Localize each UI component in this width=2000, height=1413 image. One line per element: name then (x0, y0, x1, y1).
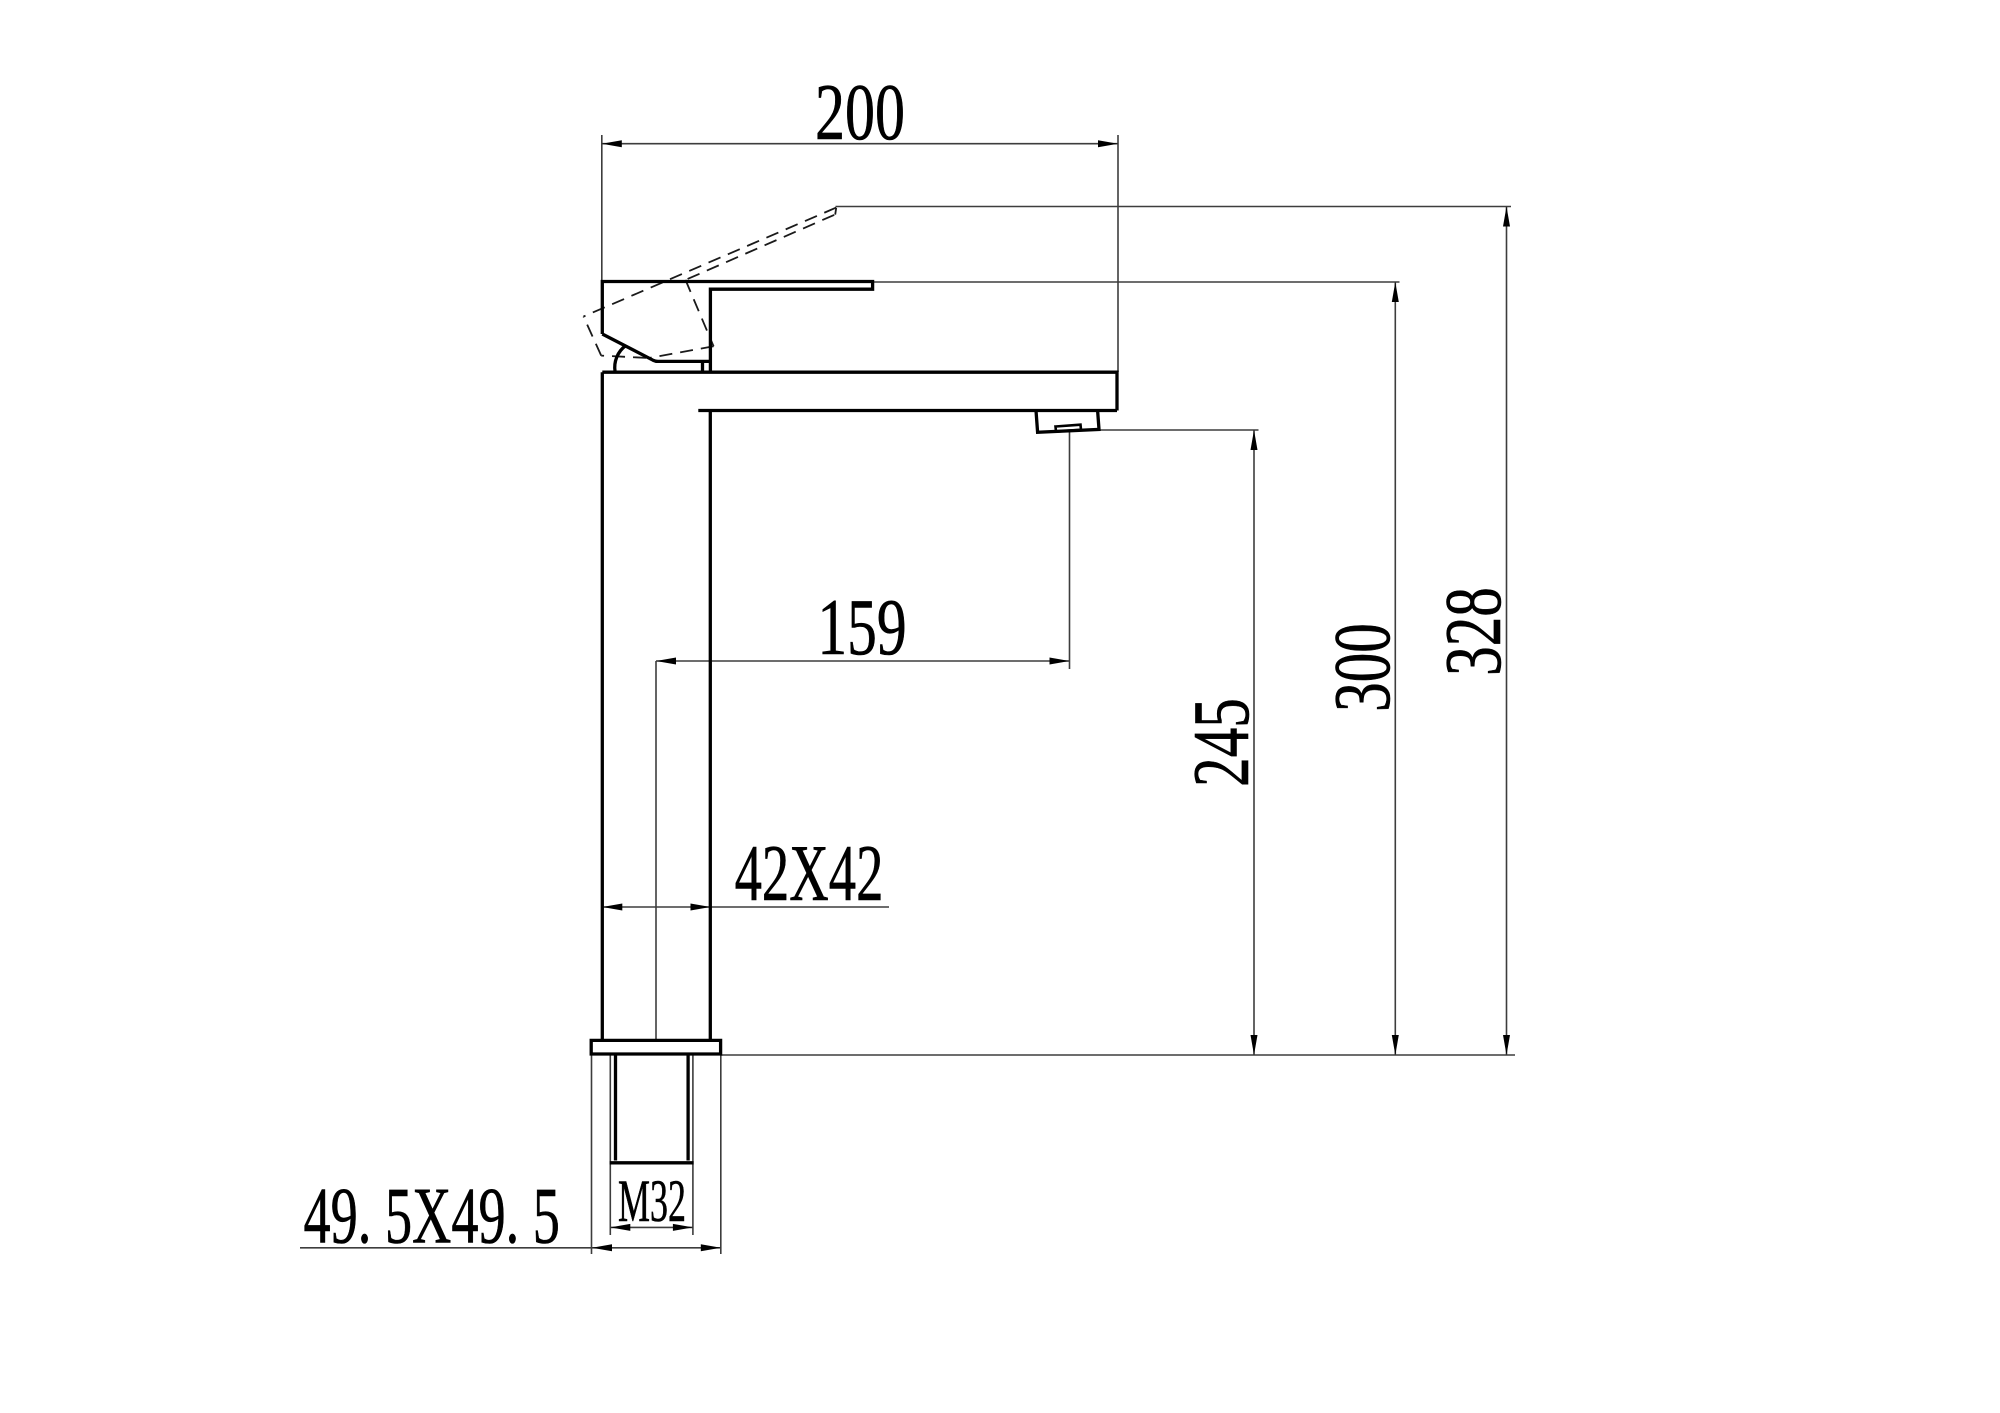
svg-text:M32: M32 (618, 1168, 686, 1235)
svg-text:49. 5X49. 5: 49. 5X49. 5 (303, 1171, 559, 1260)
svg-text:328: 328 (1429, 587, 1518, 676)
svg-text:200: 200 (815, 69, 905, 158)
svg-text:300: 300 (1318, 623, 1407, 712)
svg-text:42X42: 42X42 (735, 827, 884, 917)
svg-text:245: 245 (1177, 698, 1266, 787)
svg-text:159: 159 (817, 583, 906, 672)
